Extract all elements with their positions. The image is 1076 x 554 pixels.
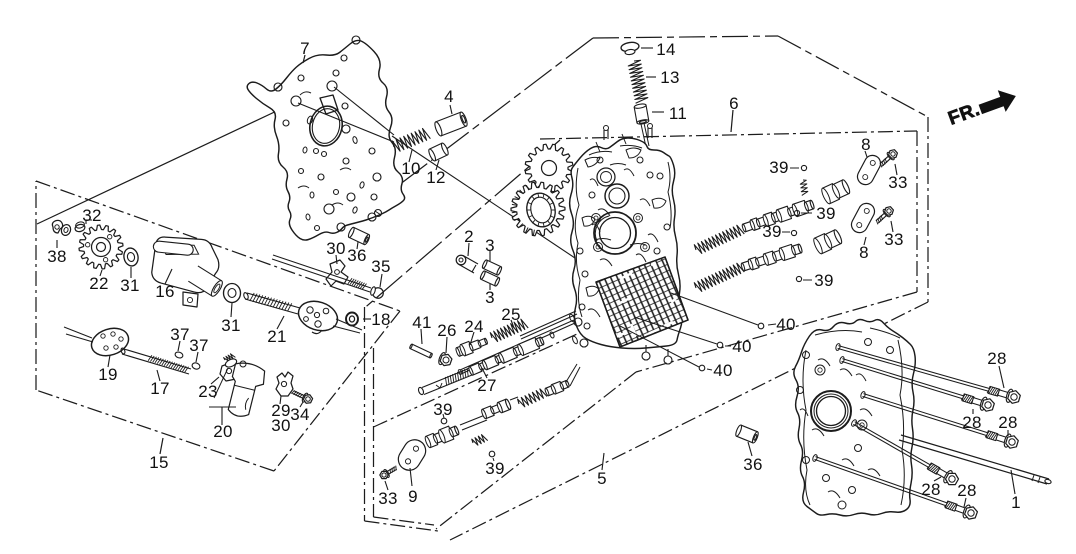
svg-text:21: 21 bbox=[267, 327, 287, 346]
svg-text:14: 14 bbox=[656, 40, 676, 59]
svg-text:37: 37 bbox=[189, 336, 209, 355]
svg-text:24: 24 bbox=[464, 317, 484, 336]
svg-text:39: 39 bbox=[769, 158, 789, 177]
svg-text:1: 1 bbox=[1011, 493, 1021, 512]
svg-text:9: 9 bbox=[408, 487, 418, 506]
svg-text:31: 31 bbox=[120, 276, 140, 295]
svg-text:11: 11 bbox=[669, 104, 687, 123]
svg-text:2: 2 bbox=[464, 227, 474, 246]
svg-text:3: 3 bbox=[485, 236, 495, 255]
svg-text:28: 28 bbox=[957, 481, 977, 500]
svg-text:40: 40 bbox=[732, 337, 752, 356]
svg-text:19: 19 bbox=[98, 365, 118, 384]
svg-text:26: 26 bbox=[437, 321, 457, 340]
svg-text:40: 40 bbox=[776, 315, 796, 334]
svg-text:39: 39 bbox=[433, 400, 453, 419]
svg-text:20: 20 bbox=[213, 422, 233, 441]
svg-text:28: 28 bbox=[921, 480, 941, 499]
svg-text:30: 30 bbox=[326, 239, 346, 258]
svg-text:3: 3 bbox=[485, 288, 495, 307]
svg-text:28: 28 bbox=[962, 413, 982, 432]
svg-text:7: 7 bbox=[300, 39, 310, 58]
svg-text:33: 33 bbox=[888, 173, 908, 192]
svg-text:16: 16 bbox=[155, 282, 175, 301]
svg-text:25: 25 bbox=[501, 305, 521, 324]
svg-text:6: 6 bbox=[729, 94, 739, 113]
svg-text:27: 27 bbox=[477, 376, 497, 395]
svg-text:32: 32 bbox=[82, 206, 102, 225]
svg-text:13: 13 bbox=[660, 68, 680, 87]
svg-text:10: 10 bbox=[401, 159, 421, 178]
svg-text:38: 38 bbox=[47, 247, 67, 266]
svg-text:8: 8 bbox=[859, 243, 869, 262]
svg-text:39: 39 bbox=[816, 204, 836, 223]
svg-text:41: 41 bbox=[412, 313, 432, 332]
svg-text:31: 31 bbox=[221, 316, 241, 335]
svg-text:34: 34 bbox=[290, 405, 310, 424]
svg-text:33: 33 bbox=[378, 489, 398, 508]
svg-text:39: 39 bbox=[762, 222, 782, 241]
svg-text:39: 39 bbox=[814, 271, 834, 290]
svg-text:12: 12 bbox=[426, 168, 446, 187]
svg-text:36: 36 bbox=[743, 455, 763, 474]
svg-text:23: 23 bbox=[198, 382, 218, 401]
svg-text:4: 4 bbox=[444, 87, 454, 106]
svg-text:36: 36 bbox=[347, 246, 367, 265]
svg-text:28: 28 bbox=[998, 413, 1018, 432]
svg-text:15: 15 bbox=[149, 453, 169, 472]
svg-text:18: 18 bbox=[371, 310, 391, 329]
svg-text:40: 40 bbox=[713, 361, 733, 380]
svg-text:37: 37 bbox=[170, 325, 190, 344]
svg-text:39: 39 bbox=[485, 459, 505, 478]
svg-text:8: 8 bbox=[861, 135, 871, 154]
svg-text:28: 28 bbox=[987, 349, 1007, 368]
svg-text:33: 33 bbox=[884, 230, 904, 249]
svg-text:5: 5 bbox=[597, 469, 607, 488]
svg-text:35: 35 bbox=[371, 257, 391, 276]
svg-text:22: 22 bbox=[89, 274, 109, 293]
svg-text:30: 30 bbox=[271, 416, 291, 435]
svg-text:17: 17 bbox=[150, 379, 170, 398]
